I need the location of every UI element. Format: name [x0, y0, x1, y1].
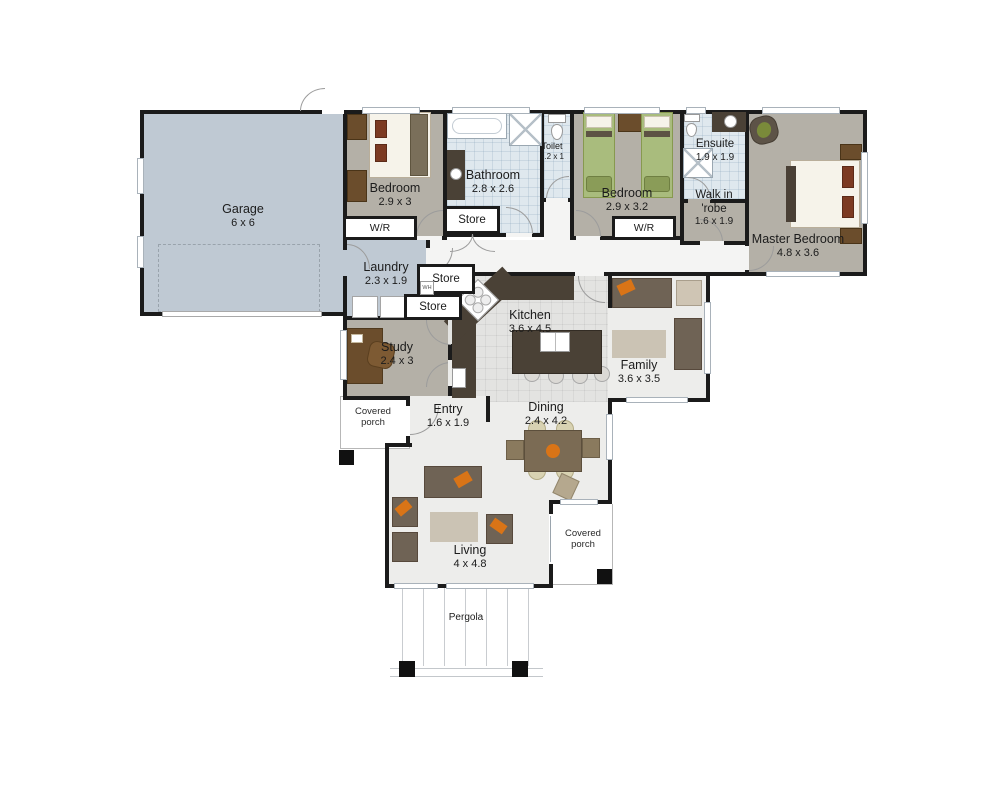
label-living: Living 4 x 4.8	[420, 543, 520, 571]
dishwasher-icon	[452, 368, 466, 388]
wardrobe-icon	[347, 114, 367, 140]
label-kitchen: Kitchen 3.6 x 4.5	[480, 308, 580, 336]
window-garage-door	[162, 311, 322, 317]
nightstand-icon	[618, 112, 642, 132]
kitchen-counter-icon	[500, 276, 574, 300]
door-gap-bedroom1	[416, 236, 442, 240]
label-toilet: Toilet 2.2 x 1	[532, 141, 572, 161]
floor-plan: W/R W/R Store Store Store WH	[0, 0, 1000, 800]
label-garage: Garage 6 x 6	[183, 202, 303, 230]
window-garage-left-2	[137, 236, 144, 268]
label-entry: Entry 1.6 x 1.9	[398, 402, 498, 430]
label-covered-porch-right: Covered porch	[553, 528, 613, 550]
dryer-icon	[380, 296, 406, 318]
bed-bench-icon	[786, 166, 796, 222]
door-gap-exterior-top	[322, 110, 344, 114]
door-arc-exterior-top	[300, 88, 325, 111]
wr2-label: W/R	[634, 222, 654, 234]
store-lower-label: Store	[419, 301, 447, 313]
room-dims: 2.8 x 2.6	[443, 183, 543, 196]
window-master-bottom	[766, 271, 840, 277]
pillow-icon	[586, 116, 612, 128]
room-name: Bedroom	[577, 186, 677, 201]
bathtub-icon	[447, 113, 507, 139]
label-master-bedroom: Master Bedroom 4.8 x 3.6	[733, 232, 863, 260]
pergola-post	[399, 661, 415, 677]
window-family-right	[704, 302, 711, 374]
window-study-left	[340, 330, 347, 380]
window-family-bottom	[626, 397, 688, 403]
pergola-slats	[402, 588, 530, 666]
store-upper-label: Store	[432, 273, 460, 285]
window-dining-right	[606, 414, 613, 460]
store-bath-label: Store	[458, 214, 486, 226]
door-gap-bedroom2	[576, 236, 600, 240]
room-name: Kitchen	[480, 308, 580, 323]
pillow-icon	[375, 120, 387, 138]
label-bedroom1: Bedroom 2.9 x 3	[345, 181, 445, 209]
room-dims: 3.6 x 4.5	[480, 323, 580, 336]
room-name: Living	[420, 543, 520, 558]
blanket-icon	[410, 114, 428, 176]
room-dims: 2.4 x 4.2	[496, 415, 596, 428]
room-name: Study	[347, 340, 447, 355]
window-ensuite-top	[686, 107, 706, 114]
room-name: 'robe	[677, 203, 751, 217]
room-dims: 2.4 x 3	[347, 355, 447, 368]
sink-icon	[724, 115, 737, 128]
room-dims: 6 x 6	[183, 217, 303, 230]
window-porch-top	[560, 499, 598, 505]
pergola-post	[512, 661, 528, 677]
label-dining: Dining 2.4 x 4.2	[496, 400, 596, 428]
door-gap-toilet	[546, 198, 568, 202]
door-gap-walk-in-robe	[700, 241, 724, 245]
window-living-bottom-2	[446, 583, 534, 589]
door-gap-study-upper	[448, 320, 452, 344]
room-dims: 3.6 x 3.5	[589, 373, 689, 386]
room-dims: 4.8 x 3.6	[733, 247, 863, 260]
window-master-top	[762, 107, 840, 114]
label-family: Family 3.6 x 3.5	[589, 358, 689, 386]
toilet-icon	[548, 114, 566, 123]
centerpiece-bowl-icon	[546, 444, 560, 458]
label-study: Study 2.4 x 3	[347, 340, 447, 368]
window-bathroom-top	[452, 107, 530, 114]
label-covered-porch-left: Covered porch	[338, 406, 408, 428]
window-garage-left-1	[137, 158, 144, 194]
room-name: Laundry	[336, 260, 436, 275]
closet-wr-bedroom1: W/R	[343, 216, 417, 240]
label-bedroom2: Bedroom 2.9 x 3.2	[577, 186, 677, 214]
rug-icon	[612, 330, 666, 358]
label-laundry: Laundry 2.3 x 1.9	[336, 260, 436, 288]
toilet-icon	[684, 114, 700, 122]
pillow-icon	[644, 116, 670, 128]
dining-chair-icon	[506, 440, 524, 460]
room-name: Bedroom	[345, 181, 445, 196]
closet-wr-bedroom2: W/R	[612, 216, 676, 240]
washing-machine-icon	[352, 296, 378, 318]
porch-post	[339, 450, 354, 465]
rug-icon	[430, 512, 478, 542]
sofa-icon	[424, 466, 482, 498]
dining-chair-icon	[582, 438, 600, 458]
window-bedroom1-top	[362, 107, 420, 114]
slider-door-line	[550, 516, 551, 562]
pillow-icon	[842, 166, 854, 188]
room-dims: 2.9 x 3	[345, 196, 445, 209]
room-name: Family	[589, 358, 689, 373]
nightstand-icon	[840, 144, 862, 160]
bed-runner-icon	[644, 131, 670, 137]
door-gap-bathroom	[506, 233, 532, 237]
bed-runner-icon	[586, 131, 612, 137]
room-name: Walk in	[677, 189, 751, 203]
toilet-alcove-floor	[544, 200, 570, 240]
window-bedroom2-top	[584, 107, 660, 114]
label-walk-in-robe: Walk in 'robe 1.6 x 1.9	[677, 189, 751, 228]
room-dims: 2.9 x 3.2	[577, 201, 677, 214]
room-dims: 1.6 x 1.9	[398, 417, 498, 430]
room-name: Toilet	[532, 141, 572, 152]
armchair-icon	[676, 280, 702, 306]
door-gap-hall-kitchen	[575, 272, 604, 276]
armchair-icon	[392, 532, 418, 562]
door-gap-study-lower	[448, 360, 452, 386]
room-dims: 1.6 x 1.9	[677, 216, 751, 228]
window-master-right	[861, 152, 868, 224]
closet-store-hall-lower: Store	[404, 294, 462, 320]
label-pergola: Pergola	[416, 612, 516, 624]
room-dims: 2.2 x 1	[532, 152, 572, 161]
room-dims: 2.3 x 1.9	[336, 275, 436, 288]
window-living-bottom-1	[394, 583, 438, 589]
label-ensuite: Ensuite 1.9 x 1.9	[679, 138, 751, 163]
label-bathroom: Bathroom 2.8 x 2.6	[443, 168, 543, 196]
closet-store-bathroom: Store	[444, 206, 500, 234]
room-dims: 1.9 x 1.9	[679, 152, 751, 164]
wr1-label: W/R	[370, 222, 390, 234]
room-name: Dining	[496, 400, 596, 415]
garage-door-dashed-outline	[158, 244, 320, 312]
pillow-icon	[842, 196, 854, 218]
room-name: Ensuite	[679, 138, 751, 152]
room-name: Garage	[183, 202, 303, 217]
pillow-icon	[375, 144, 387, 162]
room-name: Master Bedroom	[733, 232, 863, 247]
wall-living-top-stub	[385, 443, 412, 447]
room-name: Bathroom	[443, 168, 543, 183]
porch-post	[597, 569, 612, 584]
room-dims: 4 x 4.8	[420, 558, 520, 571]
wall-living-left	[385, 443, 389, 588]
wall-hall-notch	[710, 272, 749, 276]
room-name: Entry	[398, 402, 498, 417]
